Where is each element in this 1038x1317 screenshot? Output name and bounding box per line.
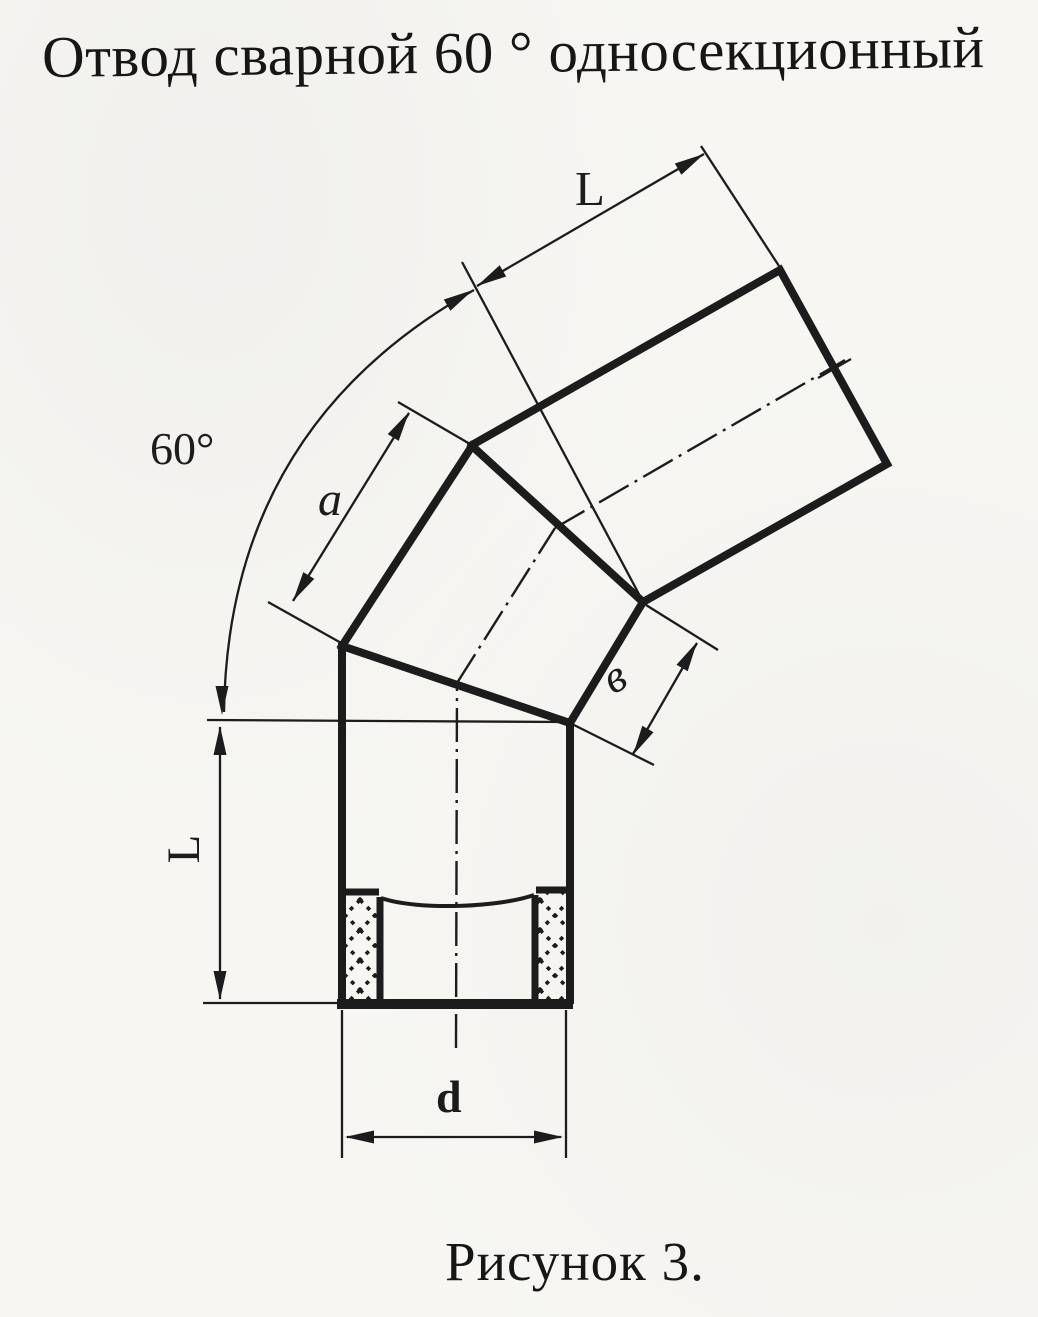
scanned-drawing-page: Отвод сварной 60 ° односекционный bbox=[0, 0, 1038, 1317]
pipe-outline bbox=[342, 270, 887, 1000]
dimension-label-diameter: d bbox=[436, 1070, 462, 1123]
figure-caption: Рисунок 3. bbox=[445, 1230, 705, 1293]
elbow-drawing bbox=[0, 0, 1038, 1317]
dimension-arrows bbox=[214, 154, 705, 1144]
dimension-label-angle: 60° bbox=[150, 422, 214, 475]
dimension-label-long-side: a bbox=[318, 472, 342, 527]
dimension-label-lower-length: L bbox=[157, 823, 211, 875]
dimension-label-upper-length: L bbox=[575, 160, 605, 217]
